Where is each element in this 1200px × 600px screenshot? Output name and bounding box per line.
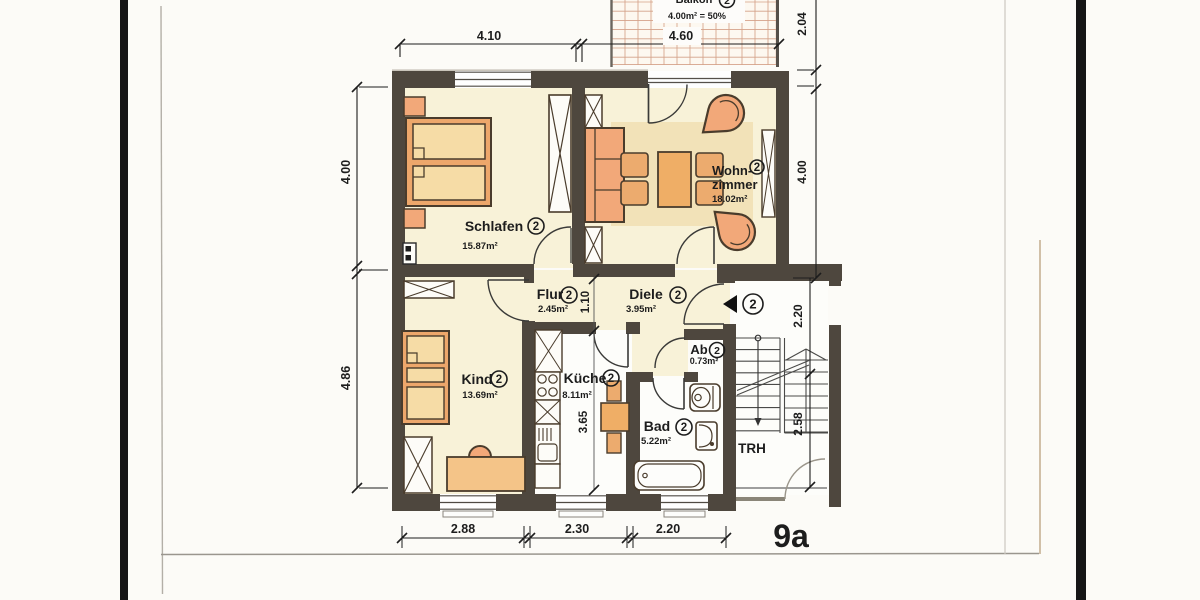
svg-text:4.00: 4.00 bbox=[339, 160, 353, 184]
svg-text:2: 2 bbox=[675, 290, 681, 302]
svg-text:Balkon: Balkon bbox=[676, 0, 713, 6]
svg-text:8.11m²: 8.11m² bbox=[562, 390, 592, 401]
svg-text:2: 2 bbox=[754, 162, 760, 174]
svg-text:3.95m²: 3.95m² bbox=[626, 304, 656, 315]
svg-text:2.20: 2.20 bbox=[791, 304, 805, 328]
svg-text:2.58: 2.58 bbox=[791, 412, 805, 436]
svg-text:2: 2 bbox=[566, 290, 572, 302]
svg-text:2: 2 bbox=[724, 0, 730, 7]
svg-text:2.04: 2.04 bbox=[795, 12, 809, 36]
svg-text:4.86: 4.86 bbox=[339, 366, 353, 390]
svg-text:4.00m² = 50%: 4.00m² = 50% bbox=[668, 11, 726, 21]
svg-text:Diele: Diele bbox=[629, 286, 663, 302]
svg-text:zimmer: zimmer bbox=[712, 177, 758, 192]
svg-text:15.87m²: 15.87m² bbox=[462, 241, 497, 252]
svg-text:Ab: Ab bbox=[690, 342, 707, 357]
svg-text:Küche: Küche bbox=[564, 370, 607, 386]
svg-text:3.65: 3.65 bbox=[578, 410, 590, 433]
svg-text:2: 2 bbox=[681, 422, 687, 434]
svg-text:2: 2 bbox=[749, 297, 756, 312]
svg-text:2.30: 2.30 bbox=[565, 522, 589, 536]
svg-text:Kind: Kind bbox=[461, 371, 492, 387]
svg-text:5.22m²: 5.22m² bbox=[641, 436, 671, 447]
svg-text:9a: 9a bbox=[773, 518, 809, 554]
svg-text:4.10: 4.10 bbox=[477, 29, 501, 43]
svg-text:2: 2 bbox=[496, 374, 502, 386]
svg-text:2.88: 2.88 bbox=[451, 522, 475, 536]
svg-text:2: 2 bbox=[533, 221, 539, 233]
svg-text:0.73m²: 0.73m² bbox=[690, 356, 719, 366]
svg-text:Schlafen: Schlafen bbox=[465, 218, 523, 234]
svg-text:Bad: Bad bbox=[644, 418, 670, 434]
svg-text:2.45m²: 2.45m² bbox=[538, 304, 568, 315]
svg-text:Flur: Flur bbox=[537, 286, 564, 302]
svg-text:13.69m²: 13.69m² bbox=[462, 390, 497, 401]
svg-text:4.00: 4.00 bbox=[795, 160, 809, 184]
svg-text:4.60: 4.60 bbox=[669, 29, 693, 43]
svg-text:1.10: 1.10 bbox=[580, 291, 592, 313]
svg-text:2.20: 2.20 bbox=[656, 522, 680, 536]
svg-text:TRH: TRH bbox=[738, 441, 766, 456]
svg-text:18.02m²: 18.02m² bbox=[712, 194, 747, 205]
svg-text:2: 2 bbox=[608, 373, 614, 385]
svg-text:Wohn-: Wohn- bbox=[712, 163, 752, 178]
svg-text:2: 2 bbox=[714, 345, 720, 357]
